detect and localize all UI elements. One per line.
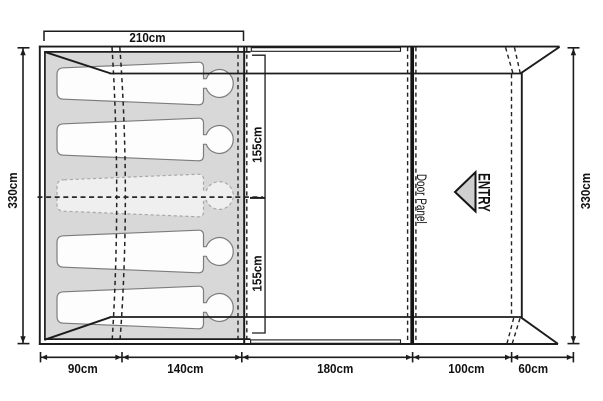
svg-text:100cm: 100cm (448, 361, 484, 376)
svg-text:140cm: 140cm (167, 361, 203, 376)
svg-text:180cm: 180cm (317, 361, 353, 376)
svg-text:60cm: 60cm (518, 361, 548, 376)
svg-text:155cm: 155cm (250, 127, 265, 163)
svg-text:155cm: 155cm (250, 255, 265, 291)
svg-text:Door Panel: Door Panel (414, 174, 430, 224)
svg-text:330cm: 330cm (5, 172, 20, 208)
svg-text:90cm: 90cm (68, 361, 98, 376)
svg-text:330cm: 330cm (578, 173, 593, 209)
svg-text:ENTRY: ENTRY (474, 173, 493, 212)
svg-text:210cm: 210cm (129, 30, 165, 45)
